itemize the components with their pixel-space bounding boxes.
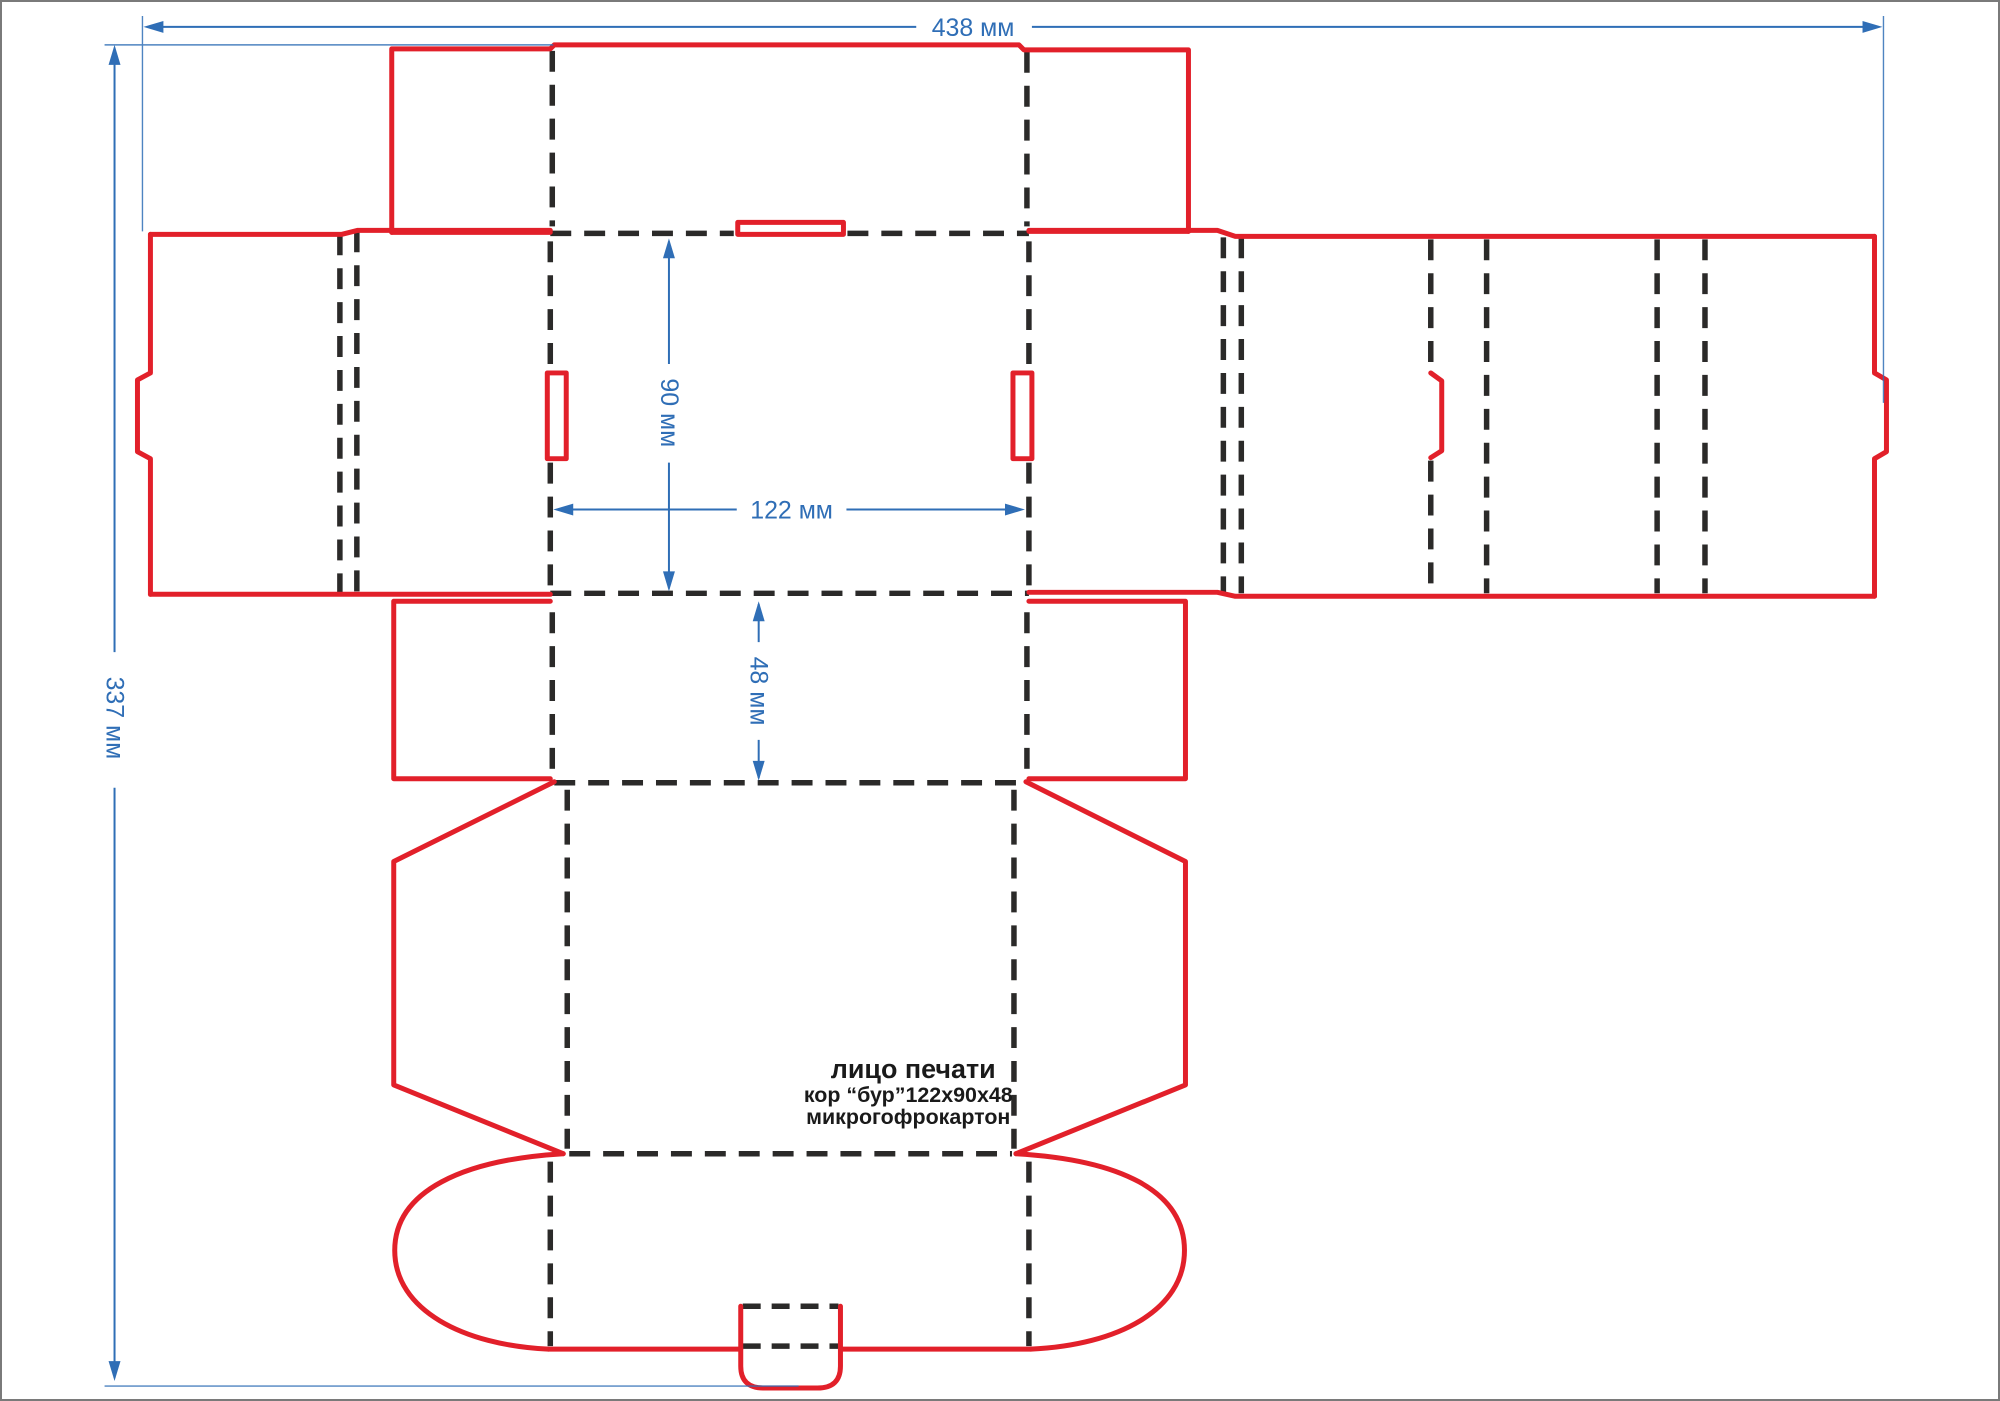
cut-ear-right <box>1016 1154 1185 1349</box>
cut-bottom-dust-right <box>1029 601 1186 778</box>
dimension-panel-depth: 48 мм <box>745 601 773 780</box>
cut-lock-tab <box>1431 373 1442 458</box>
fold-right-crease-pair <box>1223 237 1241 593</box>
dimension-panel-height-label: 90 мм <box>655 378 683 447</box>
cut-top-flaps <box>392 45 1189 232</box>
dimension-total-height: 337 мм <box>101 45 129 1381</box>
cut-bottom-dust-left <box>394 601 551 778</box>
cut-slot-top <box>738 222 844 234</box>
dieline-sheet: 438 мм 337 мм 90 мм 122 мм 4 <box>0 0 2000 1401</box>
dimension-panel-height: 90 мм <box>655 238 683 591</box>
cut-ear-left <box>395 1154 564 1349</box>
annotation-material: микрогофрокартон <box>806 1105 1010 1129</box>
dimension-total-height-label: 337 мм <box>101 677 129 760</box>
cut-band-right-edge <box>1874 236 1886 596</box>
dimension-total-width-label: 438 мм <box>932 14 1015 42</box>
dimension-total-width: 438 мм <box>143 14 1882 42</box>
cut-slot-left <box>547 373 566 459</box>
box-dieline-drawing: 438 мм 337 мм 90 мм 122 мм 4 <box>2 2 1998 1399</box>
fold-left-crease-pair <box>340 231 357 594</box>
cut-lid-right <box>1016 782 1186 1154</box>
cut-band-bottom-right <box>1029 592 1875 596</box>
cut-lines-layer <box>137 45 1886 1388</box>
annotation-box-spec: кор “бур”122х90х48 <box>804 1083 1013 1107</box>
annotation-block: лицо печати кор “бур”122х90х48 микрогофр… <box>804 1054 1013 1129</box>
cut-lid-left <box>394 782 564 1154</box>
annotation-print-face: лицо печати <box>831 1054 996 1084</box>
dimension-panel-depth-label: 48 мм <box>745 657 773 726</box>
dimension-layer: 438 мм 337 мм 90 мм 122 мм 4 <box>101 14 1884 1386</box>
cut-slot-right <box>1013 373 1032 459</box>
ext-lines <box>105 16 1884 1386</box>
cut-band-left-edge <box>137 234 150 594</box>
fold-tab-hinge <box>743 1306 839 1346</box>
dimension-panel-width: 122 мм <box>553 497 1025 525</box>
dimension-panel-width-label: 122 мм <box>750 497 833 525</box>
